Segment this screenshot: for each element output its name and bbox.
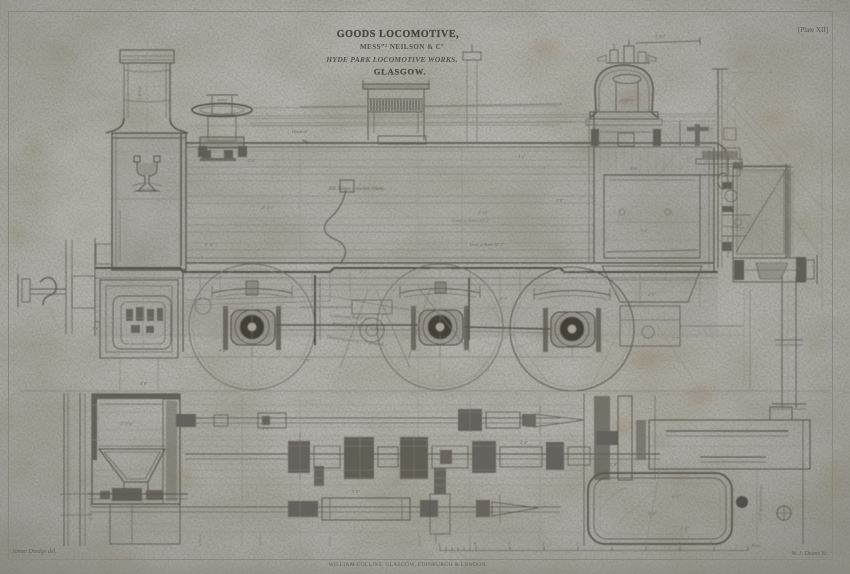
svg-text:4' 8": 4' 8" (140, 381, 148, 386)
svg-text:9' 11": 9' 11" (205, 242, 215, 247)
svg-text:8' 3½": 8' 3½" (262, 205, 274, 210)
svg-text:2' 6": 2' 6" (764, 217, 769, 225)
svg-text:2' 9": 2' 9" (648, 292, 656, 297)
svg-text:2: 2 (542, 541, 544, 546)
svg-text:3' 4": 3' 4" (680, 526, 689, 531)
svg-text:2' 11¼": 2' 11¼" (120, 421, 134, 426)
svg-text:6' 2": 6' 2" (219, 348, 227, 353)
svg-text:4' 0": 4' 0" (630, 166, 638, 171)
svg-text:HYDE PARK LOCOMOTIVE WORKS.: HYDE PARK LOCOMOTIVE WORKS. (325, 55, 458, 64)
svg-text:4' 8¾" dia: 4' 8¾" dia (88, 501, 93, 520)
svg-text:2' 0": 2' 0" (248, 158, 256, 163)
svg-text:3' 4": 3' 4" (640, 228, 648, 233)
svg-text:4' 0": 4' 0" (648, 511, 657, 516)
svg-text:3' 6": 3' 6" (92, 326, 100, 331)
svg-text:Level of Rails 10' 2": Level of Rails 10' 2" (469, 242, 504, 247)
svg-text:1' 8": 1' 8" (556, 198, 564, 203)
svg-text:Feet: Feet (751, 543, 761, 548)
svg-text:GOODS LOCOMOTIVE,: GOODS LOCOMOTIVE, (337, 29, 459, 40)
svg-text:6' 0" Between Frames: 6' 0" Between Frames (758, 484, 763, 520)
svg-text:1: 1 (438, 542, 440, 547)
svg-text:James Dredge del.: James Dredge del. (12, 549, 57, 555)
svg-text:GLASGOW.: GLASGOW. (374, 67, 427, 77)
svg-text:W. J. Deans Sc.: W. J. Deans Sc. (791, 551, 828, 557)
svg-text:3' 2": 3' 2" (262, 426, 270, 431)
svg-text:3' 9": 3' 9" (303, 358, 311, 363)
svg-text:4' 6": 4' 6" (672, 494, 681, 499)
svg-text:1' 7": 1' 7" (672, 336, 680, 341)
svg-text:1: 1 (508, 541, 510, 546)
svg-text:3' 0½": 3' 0½" (655, 34, 667, 39)
svg-text:1 ft 4 in: 1 ft 4 in (137, 85, 142, 100)
svg-text:3' 10": 3' 10" (478, 210, 489, 215)
svg-text:WILLIAM COLLINS, GLASGOW, EDIN: WILLIAM COLLINS, GLASGOW, EDINBURGH & LO… (328, 562, 487, 568)
svg-text:2' 4": 2' 4" (520, 440, 528, 445)
svg-text:MESS”² NEILSON & Cº: MESS”² NEILSON & Cº (360, 43, 444, 51)
svg-text:105 Tubes 2 inches Diam.: 105 Tubes 2 inches Diam. (328, 186, 385, 192)
svg-text:4' 6": 4' 6" (518, 154, 526, 159)
svg-text:5' 0": 5' 0" (352, 489, 360, 494)
svg-text:4' 1": 4' 1" (500, 296, 508, 301)
svg-text:Handrail: Handrail (291, 129, 308, 134)
svg-text:[Plate XII]: [Plate XII] (798, 26, 828, 34)
svg-text:Level of Tubes 10' 2": Level of Tubes 10' 2" (451, 218, 490, 223)
svg-text:1' 10": 1' 10" (618, 100, 629, 105)
svg-text:5' 1": 5' 1" (360, 269, 368, 274)
svg-text:1' 9": 1' 9" (610, 462, 618, 467)
